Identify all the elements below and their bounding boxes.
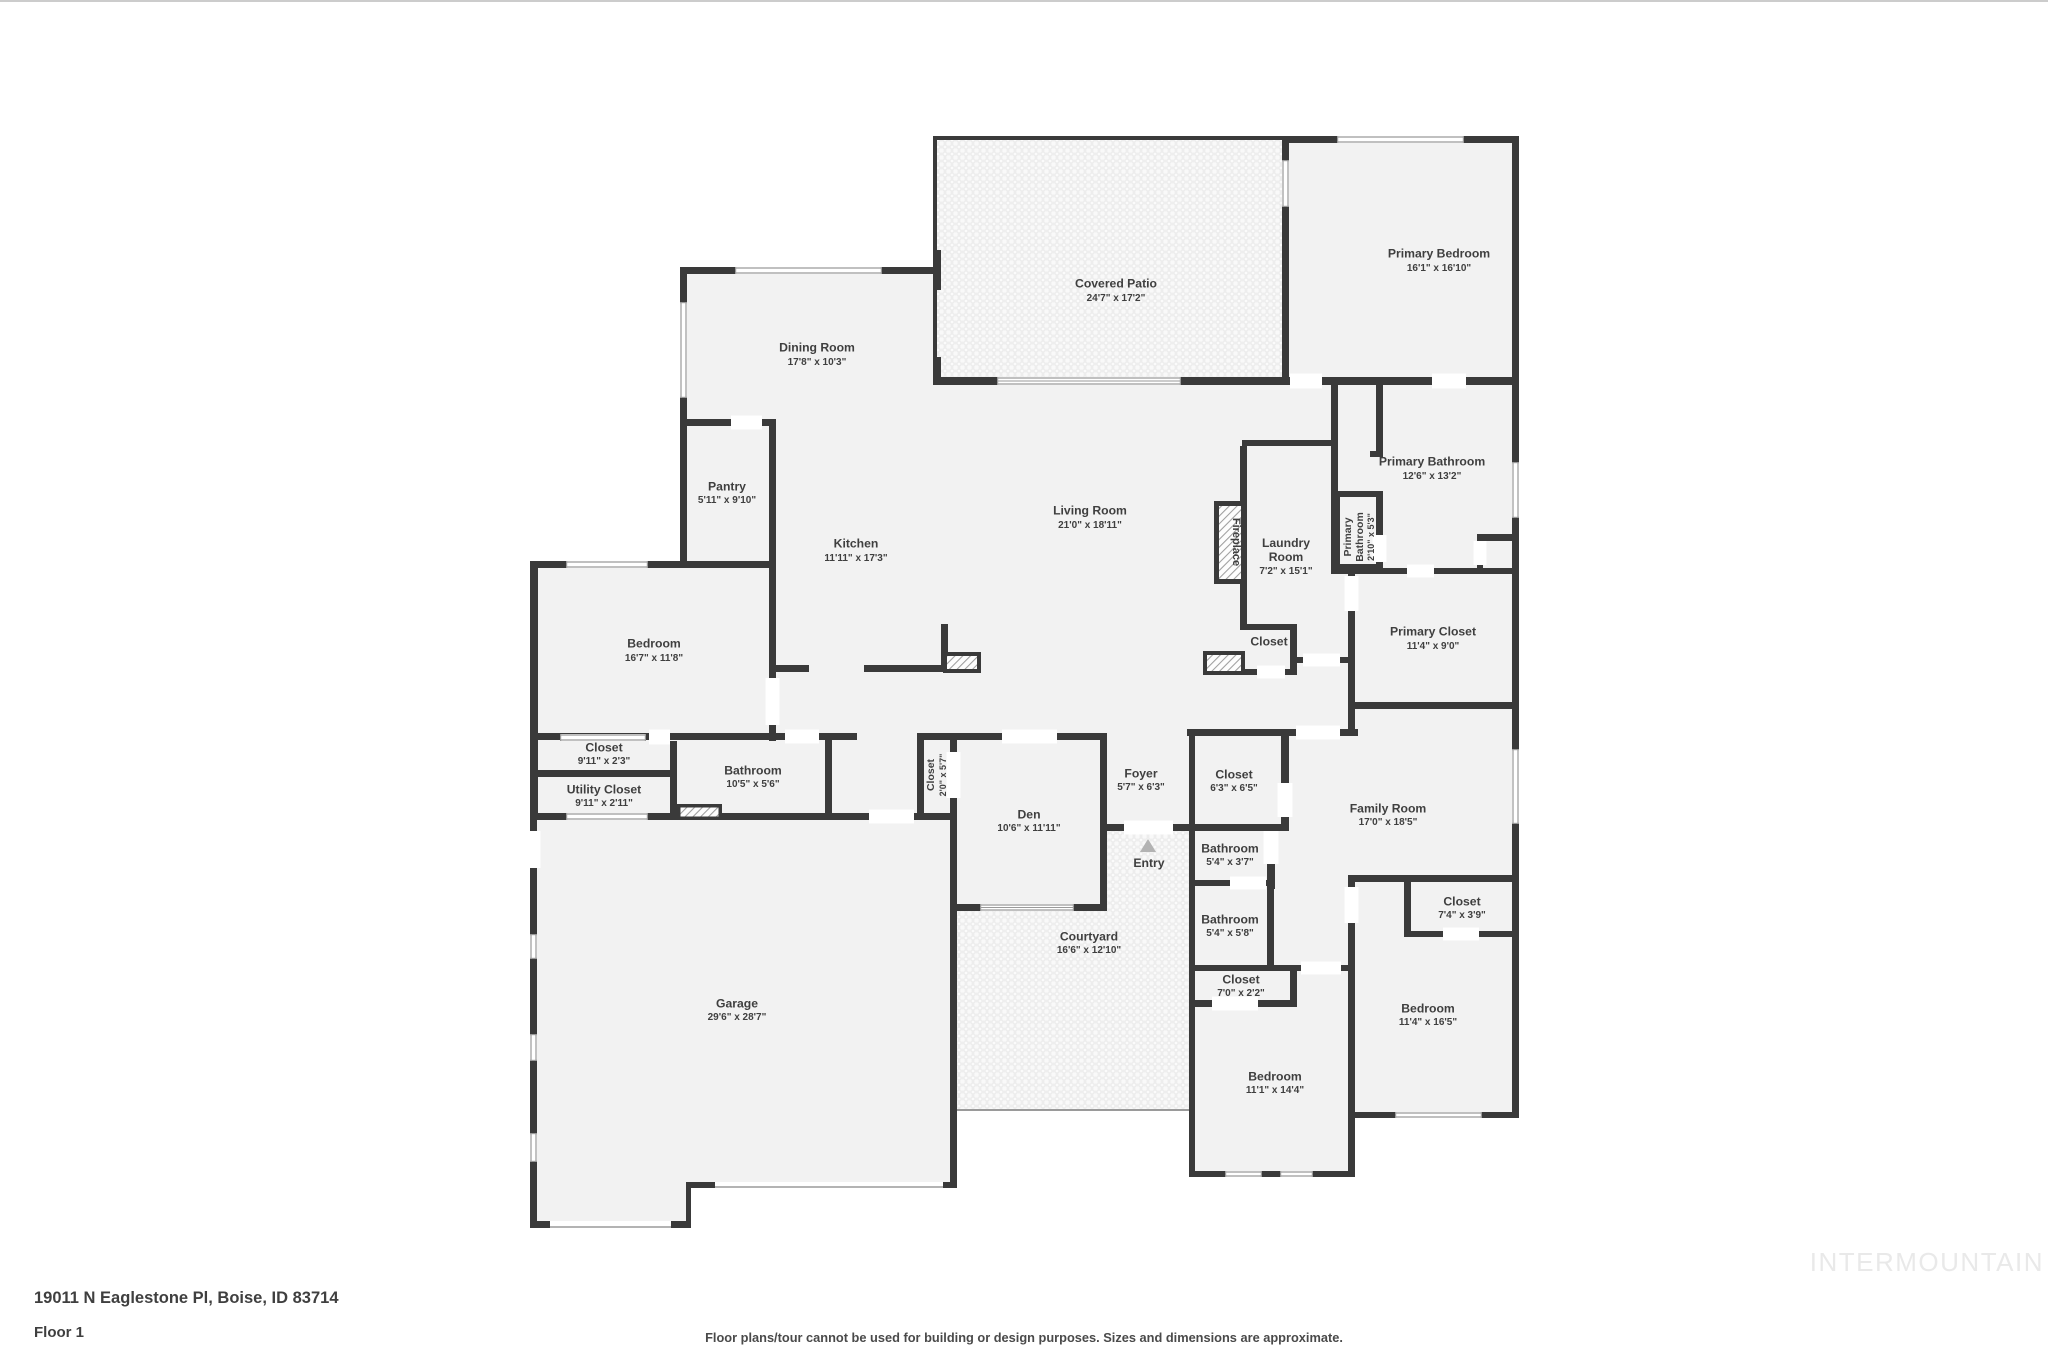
- svg-text:Primary Bathroom: Primary Bathroom: [1379, 455, 1485, 469]
- svg-text:Family Room: Family Room: [1350, 802, 1427, 816]
- svg-text:Foyer: Foyer: [1124, 767, 1157, 781]
- svg-text:16'7" x 11'8": 16'7" x 11'8": [625, 653, 683, 664]
- svg-text:24'7" x 17'2": 24'7" x 17'2": [1087, 293, 1146, 304]
- svg-text:10'5" x 5'6": 10'5" x 5'6": [726, 779, 779, 790]
- svg-text:17'0" x 18'5": 17'0" x 18'5": [1359, 817, 1418, 828]
- svg-text:Garage: Garage: [716, 997, 758, 1011]
- svg-text:7'4" x 3'9": 7'4" x 3'9": [1438, 910, 1486, 921]
- svg-text:2'10" x 5'3": 2'10" x 5'3": [1366, 513, 1376, 561]
- svg-text:11'1" x 14'4": 11'1" x 14'4": [1246, 1085, 1304, 1096]
- svg-text:Floor 1: Floor 1: [34, 1324, 84, 1341]
- svg-text:Entry: Entry: [1133, 856, 1164, 870]
- svg-text:5'4" x 5'8": 5'4" x 5'8": [1206, 928, 1254, 939]
- svg-text:Primary Bedroom: Primary Bedroom: [1388, 247, 1490, 261]
- svg-text:17'8" x 10'3": 17'8" x 10'3": [788, 357, 847, 368]
- svg-text:Closet: Closet: [1215, 768, 1252, 782]
- svg-text:5'11" x 9'10": 5'11" x 9'10": [698, 495, 756, 506]
- svg-text:6'3" x 6'5": 6'3" x 6'5": [1210, 783, 1258, 794]
- svg-text:5'7" x 6'3": 5'7" x 6'3": [1117, 782, 1165, 793]
- svg-text:7'2" x 15'1": 7'2" x 15'1": [1259, 566, 1312, 577]
- svg-text:Fireplace: Fireplace: [1230, 518, 1242, 566]
- svg-text:12'6" x 13'2": 12'6" x 13'2": [1403, 471, 1462, 482]
- svg-text:Covered Patio: Covered Patio: [1075, 277, 1157, 291]
- svg-text:19011 N Eaglestone Pl, Boise,: 19011 N Eaglestone Pl, Boise, ID 83714: [34, 1289, 339, 1307]
- svg-text:Bathroom: Bathroom: [1354, 512, 1366, 562]
- svg-text:Bathroom: Bathroom: [1201, 842, 1259, 856]
- svg-text:Bathroom: Bathroom: [1201, 913, 1259, 927]
- svg-text:Bedroom: Bedroom: [1248, 1070, 1302, 1084]
- svg-text:Courtyard: Courtyard: [1060, 930, 1118, 944]
- svg-text:16'6" x 12'10": 16'6" x 12'10": [1057, 945, 1122, 956]
- svg-text:9'11" x 2'11": 9'11" x 2'11": [575, 798, 633, 809]
- svg-text:29'6" x 28'7": 29'6" x 28'7": [708, 1012, 767, 1023]
- svg-text:11'11" x 17'3": 11'11" x 17'3": [824, 553, 887, 564]
- svg-text:Bedroom: Bedroom: [1401, 1002, 1455, 1016]
- svg-text:Closet: Closet: [1443, 895, 1480, 909]
- svg-text:Living Room: Living Room: [1053, 504, 1127, 518]
- svg-text:11'4" x 9'0": 11'4" x 9'0": [1407, 641, 1460, 652]
- svg-text:Dining Room: Dining Room: [779, 341, 855, 355]
- svg-text:21'0" x 18'11": 21'0" x 18'11": [1058, 520, 1122, 531]
- svg-text:10'6" x 11'11": 10'6" x 11'11": [997, 823, 1060, 834]
- svg-text:Closet: Closet: [925, 758, 937, 791]
- svg-text:Utility Closet: Utility Closet: [567, 783, 642, 797]
- svg-text:Room: Room: [1269, 550, 1304, 564]
- svg-text:Den: Den: [1017, 808, 1040, 822]
- svg-text:Bathroom: Bathroom: [724, 764, 782, 778]
- svg-text:INTERMOUNTAIN: INTERMOUNTAIN: [1810, 1247, 2044, 1277]
- svg-text:Kitchen: Kitchen: [834, 537, 879, 551]
- svg-text:Closet: Closet: [1250, 635, 1287, 649]
- svg-text:16'1" x 16'10": 16'1" x 16'10": [1407, 263, 1472, 274]
- svg-text:Bedroom: Bedroom: [627, 637, 681, 651]
- svg-text:7'0" x 2'2": 7'0" x 2'2": [1217, 988, 1265, 999]
- svg-text:Pantry: Pantry: [708, 480, 746, 494]
- svg-text:2'0" x 5'7": 2'0" x 5'7": [938, 754, 948, 797]
- svg-text:Closet: Closet: [585, 741, 622, 755]
- svg-text:5'4" x 3'7": 5'4" x 3'7": [1206, 857, 1254, 868]
- svg-text:9'11" x 2'3": 9'11" x 2'3": [578, 756, 631, 767]
- svg-text:Primary: Primary: [1342, 517, 1354, 556]
- svg-text:Floor plans/tour cannot be use: Floor plans/tour cannot be used for buil…: [705, 1330, 1343, 1345]
- svg-text:Primary Closet: Primary Closet: [1390, 625, 1476, 639]
- svg-text:Closet: Closet: [1222, 973, 1259, 987]
- svg-text:11'4" x 16'5": 11'4" x 16'5": [1399, 1017, 1457, 1028]
- svg-text:Laundry: Laundry: [1262, 536, 1310, 550]
